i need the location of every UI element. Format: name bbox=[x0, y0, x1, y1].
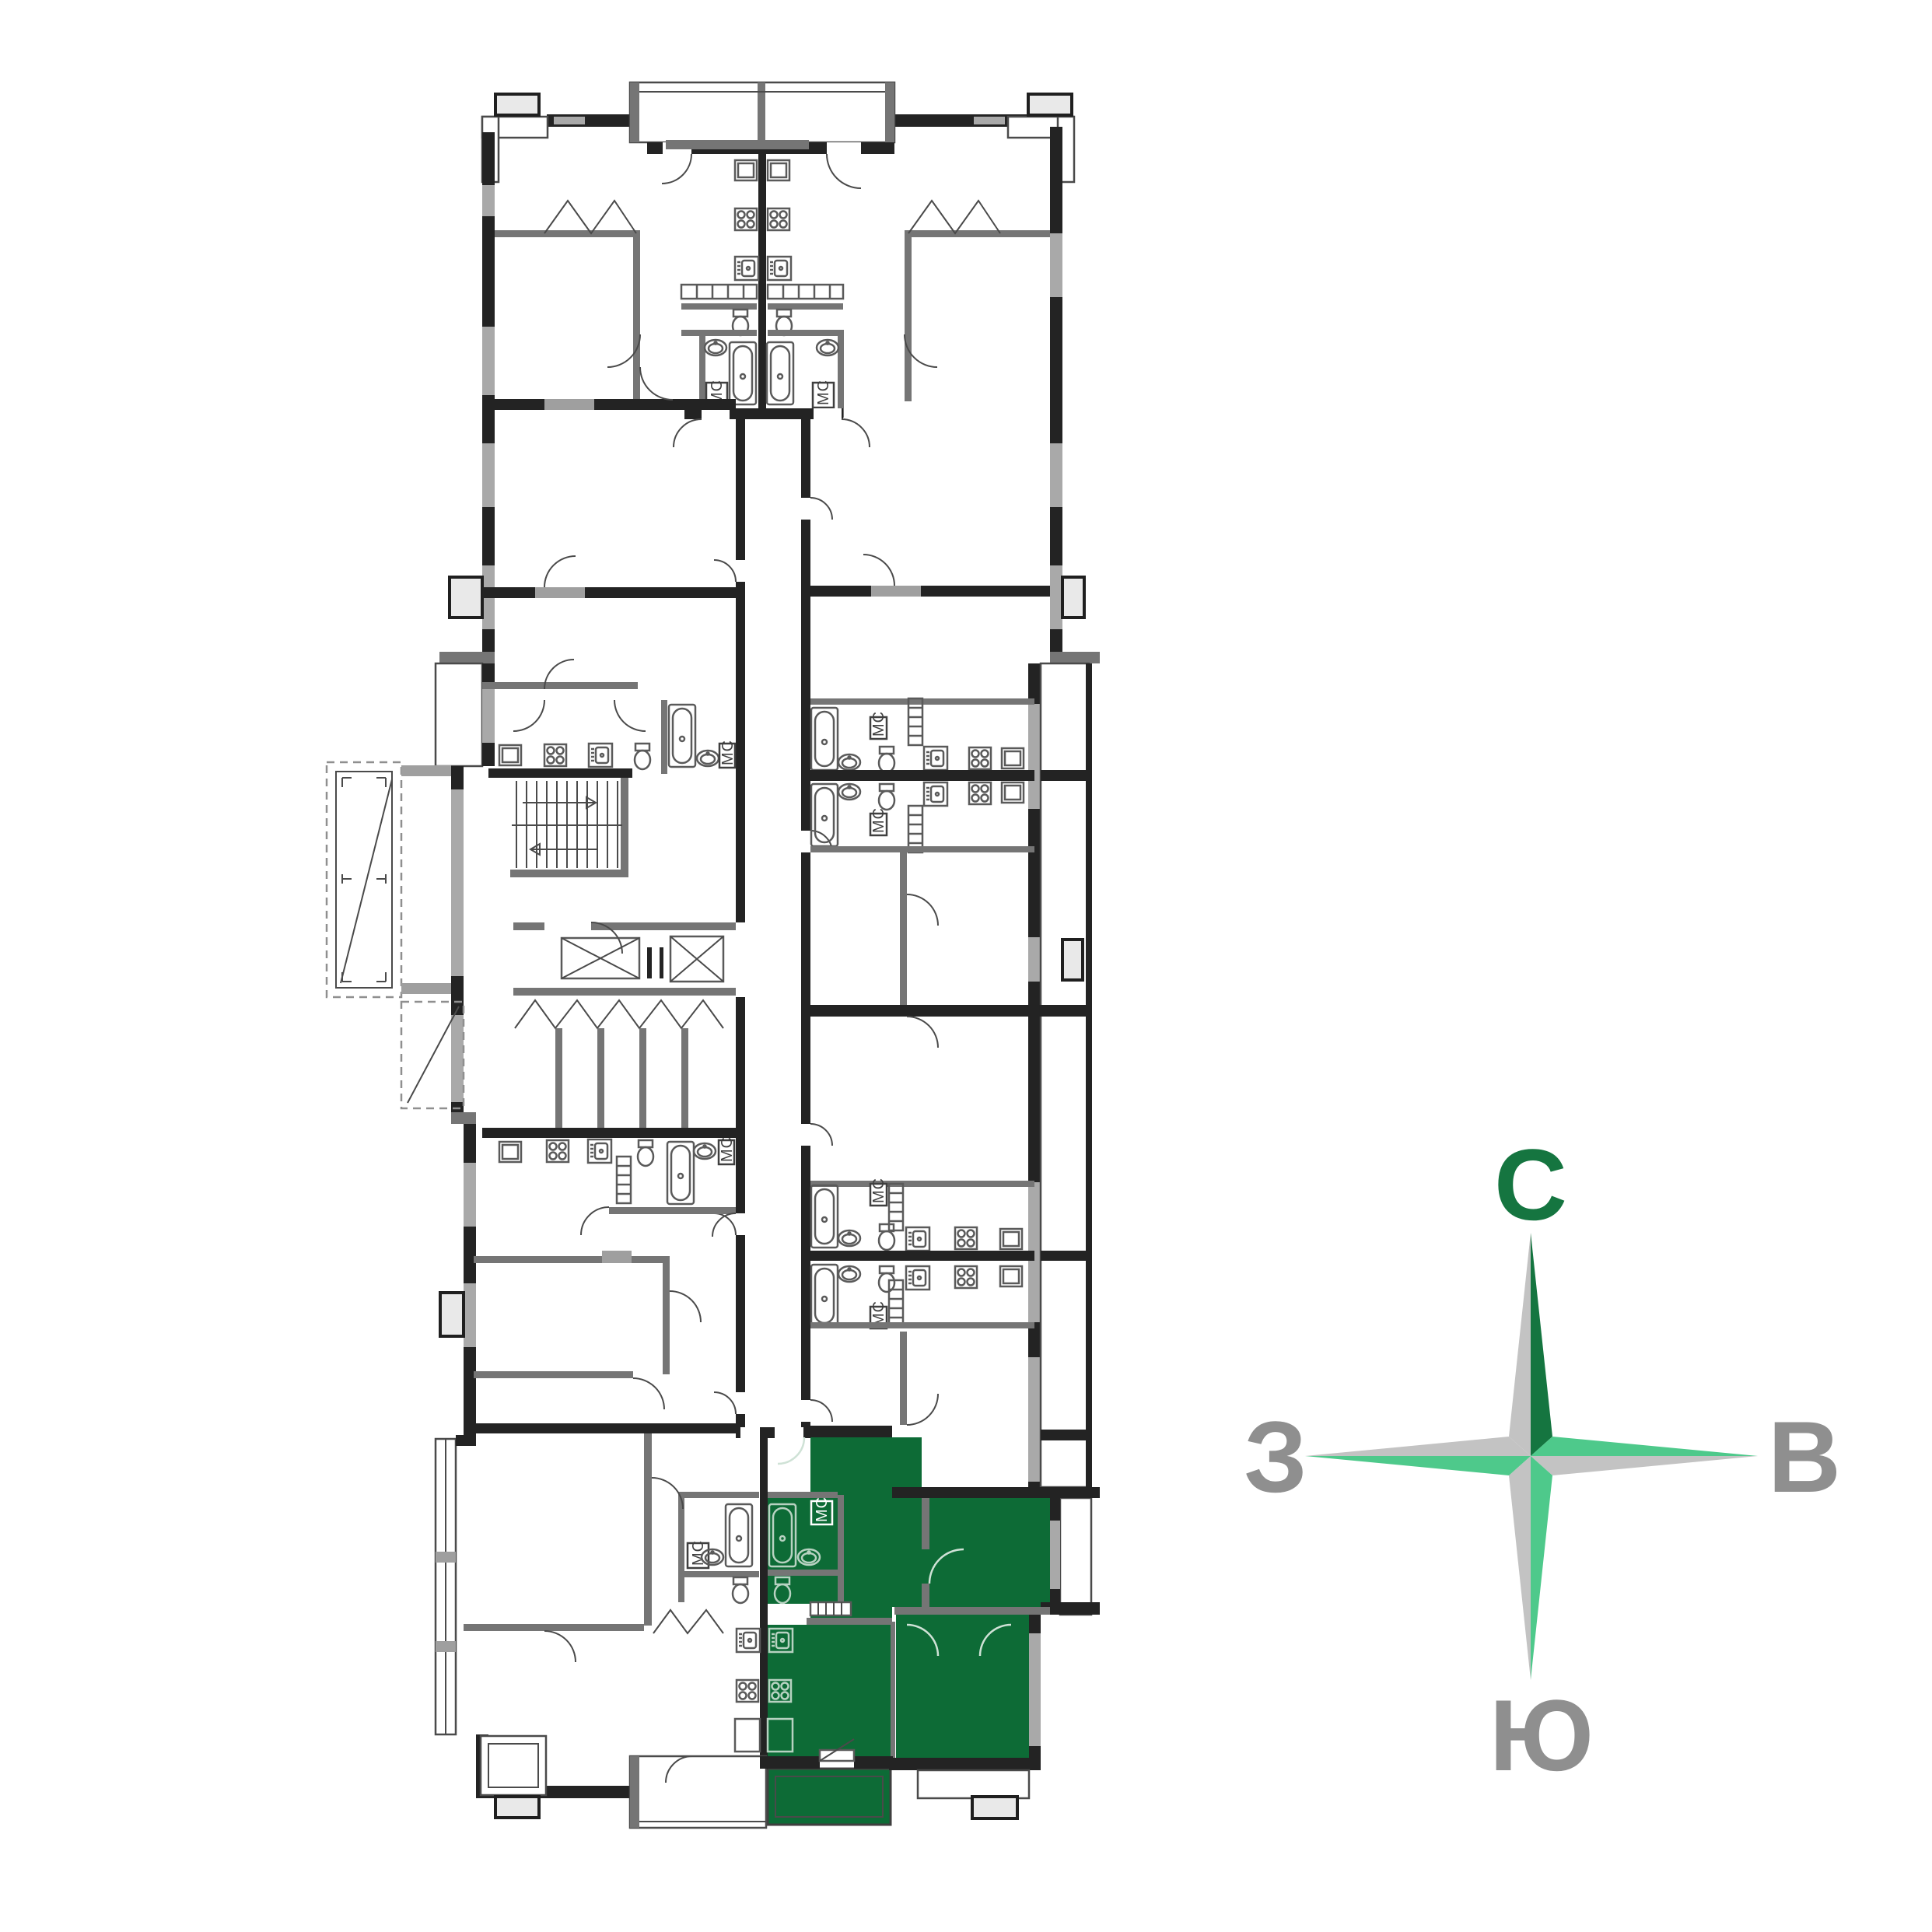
mc-label: МС bbox=[870, 711, 887, 737]
elevator-lobby bbox=[513, 922, 736, 996]
dashed-annex bbox=[327, 762, 464, 1108]
elevator-1 bbox=[562, 938, 639, 978]
fridge-icon bbox=[1002, 748, 1024, 768]
compass-letter-west: З bbox=[1244, 1400, 1307, 1514]
bathtub-icon bbox=[667, 1142, 694, 1204]
closet-doors bbox=[653, 1610, 723, 1633]
compass-letter-south: Ю bbox=[1489, 1678, 1594, 1792]
kitchen-sink-icon bbox=[924, 782, 947, 806]
closet-doors bbox=[544, 201, 636, 233]
cabinet-icon bbox=[908, 698, 922, 745]
stove-icon bbox=[735, 208, 757, 230]
stove-icon bbox=[955, 1266, 977, 1288]
compass-arm-east-bottom bbox=[1531, 1456, 1758, 1475]
top-balcony bbox=[630, 82, 894, 142]
bathtub-icon bbox=[726, 1504, 752, 1566]
bathtub-icon bbox=[811, 1185, 838, 1248]
toilet-icon bbox=[879, 1224, 894, 1250]
bathtub-icon bbox=[730, 342, 756, 404]
loggia-left bbox=[436, 663, 482, 766]
sink-icon bbox=[838, 754, 860, 770]
stove-icon bbox=[737, 1680, 758, 1702]
window-box-right bbox=[1062, 577, 1084, 618]
entrance-vestibule bbox=[630, 1756, 766, 1828]
compass-arm-south-right bbox=[1531, 1456, 1552, 1680]
toilet-icon bbox=[879, 1266, 894, 1292]
balcony-cap bbox=[1028, 94, 1072, 115]
mc-label: МС bbox=[870, 1178, 887, 1203]
toilet-icon bbox=[879, 747, 894, 772]
apartment-separator bbox=[810, 1005, 1041, 1017]
kitchen-sink-icon bbox=[924, 747, 947, 770]
storage-row bbox=[482, 1000, 736, 1138]
closet-doors bbox=[908, 201, 1000, 233]
stove-icon bbox=[969, 782, 991, 804]
stove-icon bbox=[969, 747, 991, 769]
bathtub-icon bbox=[811, 784, 838, 846]
compass-rose: С В З Ю bbox=[1244, 1128, 1841, 1792]
elevator-2 bbox=[670, 936, 723, 982]
green-living-room[interactable] bbox=[896, 1615, 1029, 1758]
compass-letter-north: С bbox=[1494, 1128, 1567, 1241]
balcony-cap bbox=[495, 94, 539, 115]
green-kitchen[interactable] bbox=[768, 1625, 891, 1756]
building: МС МС bbox=[327, 82, 1100, 1828]
compass-arm-north-right bbox=[1531, 1233, 1552, 1456]
compass-arm-west-bottom bbox=[1305, 1456, 1531, 1475]
kitchen-sink-icon bbox=[735, 257, 758, 280]
window-box-left-2 bbox=[440, 1293, 464, 1336]
corner-balcony-top-right bbox=[1008, 94, 1074, 182]
kitchen-sink-icon bbox=[588, 1139, 611, 1163]
toilet-icon bbox=[879, 784, 894, 810]
kitchen-sink-icon bbox=[906, 1227, 929, 1251]
kitchen-sink-icon bbox=[737, 1629, 760, 1652]
fridge-icon bbox=[735, 160, 757, 180]
compass-letter-east: В bbox=[1768, 1400, 1841, 1514]
floor-plan-page: МС МС bbox=[0, 0, 1932, 1932]
left-apartment-4: МС bbox=[474, 1136, 736, 1409]
kitchen-sink-icon bbox=[589, 744, 612, 767]
stove-icon bbox=[768, 208, 789, 230]
loggia-right bbox=[1041, 663, 1092, 1487]
loggia-bedroom bbox=[1060, 1498, 1091, 1615]
bathtub-icon bbox=[811, 1265, 838, 1327]
fridge-icon bbox=[768, 160, 789, 180]
balcony-bottom-left bbox=[481, 1736, 546, 1818]
sink-icon bbox=[705, 340, 726, 355]
toilet-icon bbox=[733, 1577, 748, 1603]
fridge-icon bbox=[1002, 782, 1024, 803]
kitchen-sink-icon bbox=[768, 257, 791, 280]
sink-icon bbox=[838, 1230, 860, 1246]
sink-icon bbox=[702, 1549, 723, 1565]
sink-icon bbox=[694, 1143, 716, 1159]
mc-label: МС bbox=[870, 807, 887, 833]
green-wc[interactable] bbox=[768, 1576, 838, 1604]
fridge-icon bbox=[1000, 1266, 1022, 1286]
sink-icon bbox=[817, 340, 838, 355]
stove-icon bbox=[544, 744, 566, 766]
mc-label: МС bbox=[815, 380, 832, 405]
compass-arm-west-top bbox=[1305, 1437, 1531, 1456]
sink-icon bbox=[838, 1266, 860, 1282]
cabinet-icon bbox=[908, 806, 922, 852]
balcony-cap bbox=[495, 1797, 539, 1818]
apartment-separator bbox=[476, 1423, 736, 1433]
right-cluster-2: МС МС bbox=[805, 1178, 1034, 1425]
cabinet-icon bbox=[617, 1157, 631, 1203]
compass-arm-east-top bbox=[1531, 1437, 1758, 1456]
mc-label: МС bbox=[814, 1496, 831, 1522]
compass-arm-south-left bbox=[1509, 1456, 1531, 1680]
mc-label: МС bbox=[719, 740, 737, 765]
toilet-icon bbox=[635, 744, 650, 769]
floor-plan-drawing: МС МС bbox=[0, 0, 1932, 1932]
sink-icon bbox=[838, 784, 860, 800]
bathtub-icon bbox=[669, 705, 695, 767]
bathtub-icon bbox=[767, 342, 793, 404]
fridge-icon bbox=[1000, 1229, 1022, 1249]
bathtub-icon bbox=[811, 708, 838, 770]
window-box-left bbox=[450, 577, 482, 618]
stairwell bbox=[510, 778, 628, 877]
toilet-icon bbox=[638, 1140, 653, 1166]
mc-label: МС bbox=[719, 1136, 736, 1162]
stove-icon bbox=[547, 1140, 569, 1162]
right-cluster-1: МС МС bbox=[805, 698, 1034, 1005]
balcony-bottom-right bbox=[918, 1770, 1029, 1818]
compass-arm-north-left bbox=[1509, 1233, 1531, 1456]
mid-left-utility-cluster: МС bbox=[488, 700, 737, 778]
door-arc bbox=[778, 1437, 804, 1464]
balcony-cap bbox=[972, 1797, 1017, 1818]
sink-icon bbox=[697, 751, 719, 766]
stove-icon bbox=[955, 1227, 977, 1249]
kitchen-sink-icon bbox=[906, 1266, 929, 1290]
wardrobe-icon bbox=[810, 1602, 851, 1615]
cabinet-icon bbox=[889, 1280, 903, 1327]
